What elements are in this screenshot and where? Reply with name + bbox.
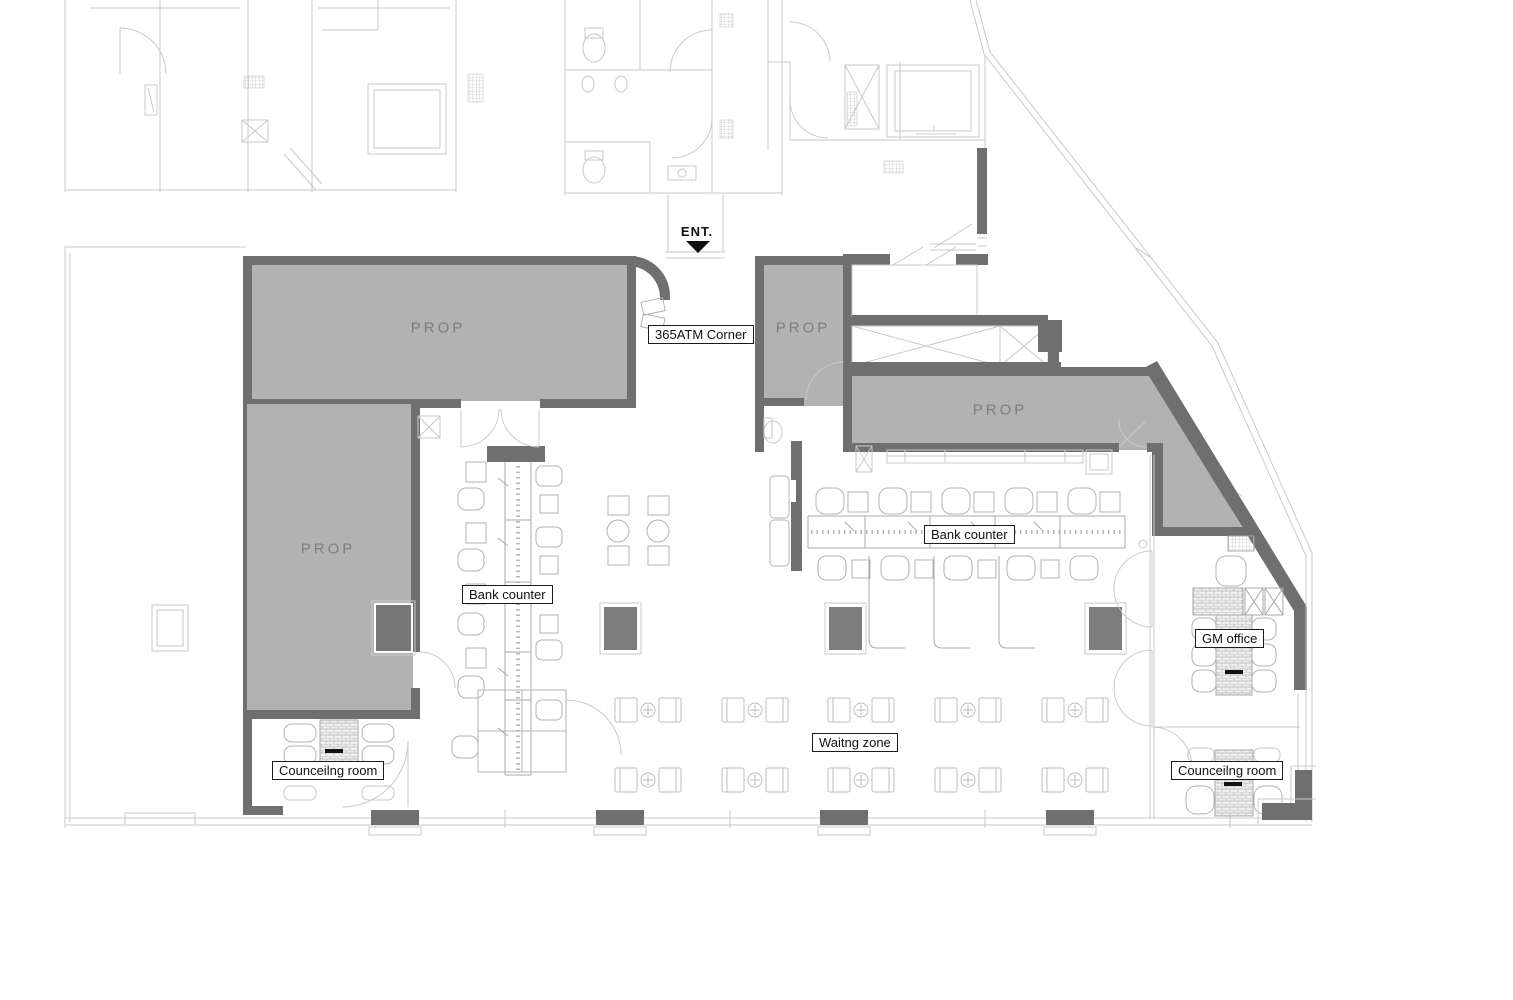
atm-corner-label: 365ATM Corner xyxy=(648,325,754,344)
prop-entry-label: PROP xyxy=(776,320,831,337)
gm-desk xyxy=(1193,588,1243,615)
safe-box xyxy=(375,604,412,652)
bank-counter-right-label: Bank counter xyxy=(924,525,1015,544)
gm-office-label: GM office xyxy=(1195,629,1264,648)
floor-plan-page: ENT. 365ATM Corner PROP PROP PROP PROP B… xyxy=(0,0,1513,1000)
entrance-arrow-icon xyxy=(686,241,710,253)
core-block xyxy=(843,148,1062,373)
bank-counter-right xyxy=(770,441,1125,648)
entrance xyxy=(665,241,725,258)
floor-plan-drawing xyxy=(0,0,1513,1000)
waiting-zone-label: Waitng zone xyxy=(812,733,898,752)
counseling-left-label: Counceilng room xyxy=(272,761,384,780)
structural-columns xyxy=(600,603,1126,654)
counseling-right-label: Counceilng room xyxy=(1171,761,1283,780)
prop-right-label: PROP xyxy=(973,402,1028,419)
prop-top-left-label: PROP xyxy=(411,320,466,337)
prop-room-entry xyxy=(755,256,852,452)
gm-meeting-table xyxy=(1216,615,1252,695)
entrance-label: ENT. xyxy=(681,224,713,239)
lounge-tables xyxy=(607,496,669,565)
cabinet xyxy=(1228,536,1254,551)
bank-counter-left-label: Bank counter xyxy=(462,585,553,604)
executive-chair xyxy=(1216,556,1246,586)
prop-left-label: PROP xyxy=(301,541,356,558)
